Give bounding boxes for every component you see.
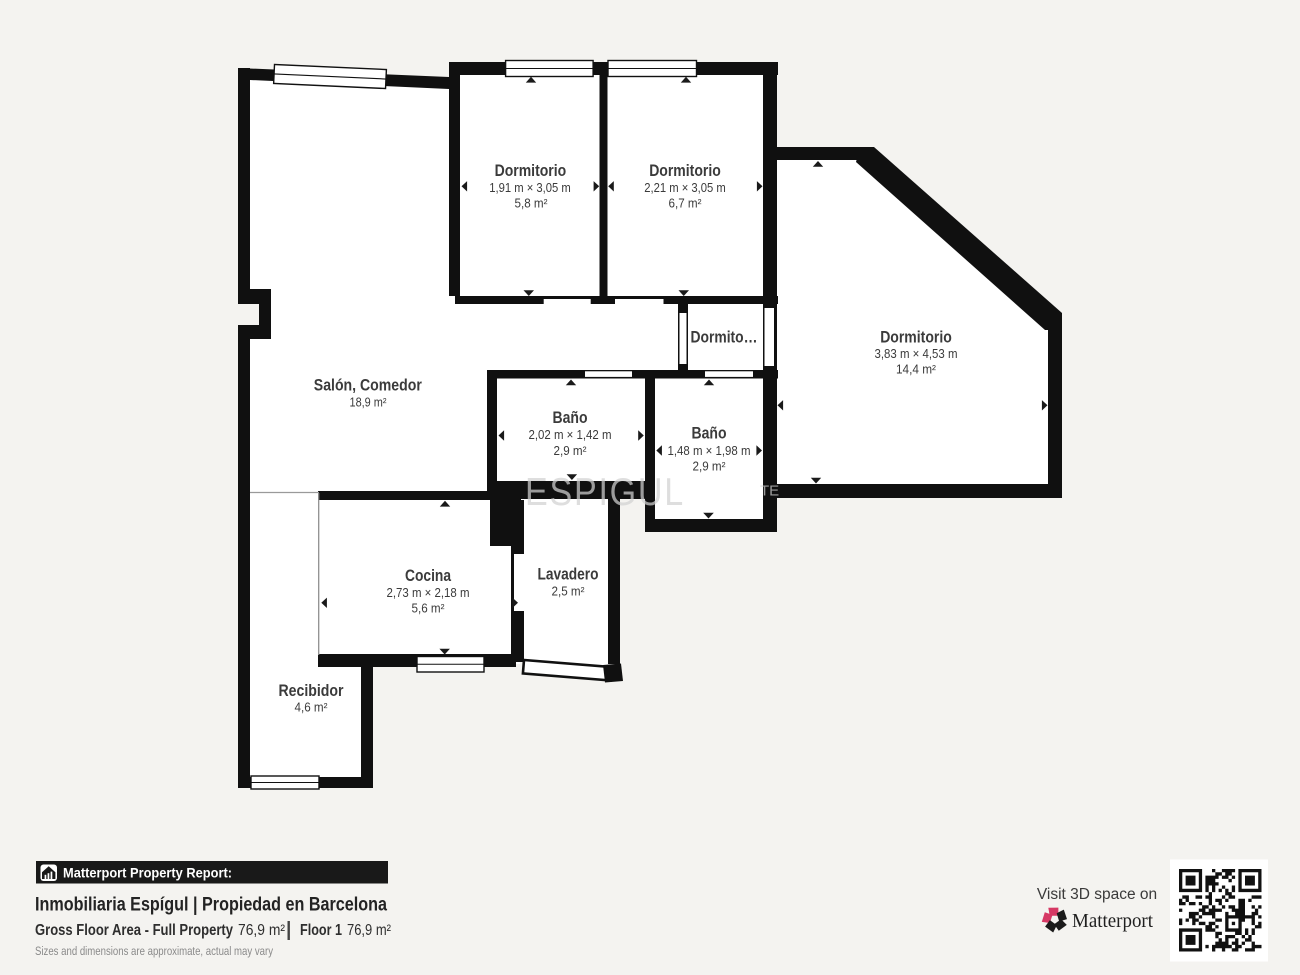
- svg-text:2,02 m × 1,42 m: 2,02 m × 1,42 m: [529, 427, 612, 442]
- svg-text:2,73 m × 2,18 m: 2,73 m × 2,18 m: [387, 585, 470, 600]
- svg-text:2,9 m²: 2,9 m²: [554, 443, 588, 458]
- svg-text:Salón, Comedor: Salón, Comedor: [314, 377, 422, 395]
- svg-text:14,4 m²: 14,4 m²: [896, 362, 937, 377]
- svg-text:76,9 m²: 76,9 m²: [238, 922, 285, 939]
- svg-text:18,9 m²: 18,9 m²: [350, 395, 387, 410]
- svg-text:Dormito…: Dormito…: [691, 329, 758, 347]
- svg-text:Dormitorio: Dormitorio: [495, 162, 567, 180]
- svg-text:Matterport Property Report:: Matterport Property Report:: [63, 865, 232, 881]
- svg-text:Visit 3D space on: Visit 3D space on: [1037, 886, 1157, 903]
- svg-text:Sizes and dimensions are appro: Sizes and dimensions are approximate, ac…: [35, 944, 274, 958]
- svg-text:Floor 1: Floor 1: [300, 922, 342, 939]
- svg-text:6,7 m²: 6,7 m²: [669, 196, 703, 211]
- svg-text:1,48 m × 1,98 m: 1,48 m × 1,98 m: [668, 443, 751, 458]
- svg-text:Dormitorio: Dormitorio: [880, 329, 952, 347]
- svg-text:Recibidor: Recibidor: [279, 682, 344, 700]
- svg-text:Baño: Baño: [692, 425, 727, 443]
- svg-text:4,6 m²: 4,6 m²: [295, 700, 329, 715]
- svg-text:Inmobiliaria Espígul | Propied: Inmobiliaria Espígul | Propiedad en Barc…: [35, 894, 387, 916]
- svg-text:3,83 m × 4,53 m: 3,83 m × 4,53 m: [875, 346, 958, 361]
- svg-text:76,9 m²: 76,9 m²: [347, 922, 391, 939]
- svg-text:5,6 m²: 5,6 m²: [412, 601, 446, 616]
- svg-text:5,8 m²: 5,8 m²: [515, 196, 549, 211]
- svg-text:2,21 m × 3,05 m: 2,21 m × 3,05 m: [644, 180, 726, 195]
- svg-text:Baño: Baño: [553, 409, 588, 427]
- svg-text:2,5 m²: 2,5 m²: [552, 584, 586, 599]
- svg-text:1,91 m × 3,05 m: 1,91 m × 3,05 m: [489, 180, 571, 195]
- svg-text:Lavadero: Lavadero: [538, 566, 599, 584]
- svg-text:Dormitorio: Dormitorio: [649, 162, 721, 180]
- svg-text:Cocina: Cocina: [405, 567, 452, 585]
- svg-text:Matterport: Matterport: [1072, 911, 1154, 932]
- svg-text:ESPIGUL: ESPIGUL: [525, 471, 685, 514]
- svg-text:Gross Floor Area - Full Proper: Gross Floor Area - Full Property: [35, 922, 233, 939]
- svg-text:2,9 m²: 2,9 m²: [693, 459, 727, 474]
- svg-text:TE: TE: [760, 483, 779, 500]
